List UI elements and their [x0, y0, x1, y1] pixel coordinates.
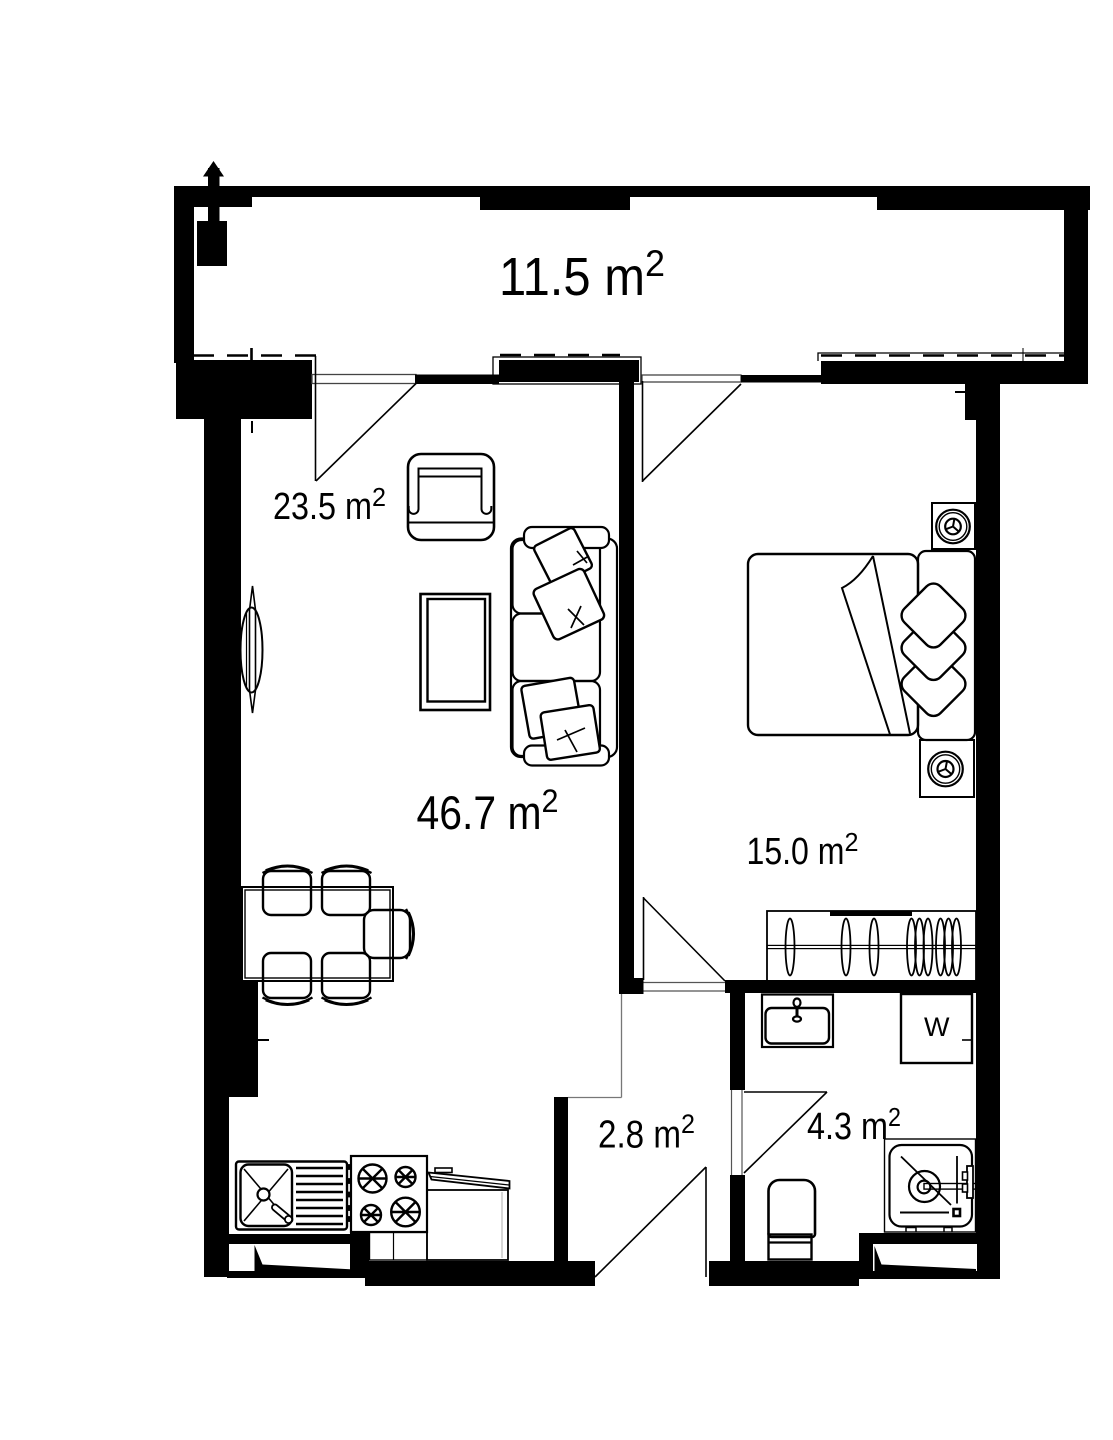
svg-text:W: W — [924, 1012, 950, 1042]
svg-text:11.5 m: 11.5 m — [499, 247, 645, 307]
svg-text:2.8 m: 2.8 m — [598, 1114, 681, 1157]
svg-text:4.3 m: 4.3 m — [807, 1106, 888, 1148]
svg-text:15.0 m: 15.0 m — [747, 831, 845, 873]
svg-text:2: 2 — [542, 783, 559, 819]
svg-text:2: 2 — [845, 827, 859, 857]
svg-text:23.5 m: 23.5 m — [273, 486, 372, 528]
svg-text:2: 2 — [888, 1102, 901, 1132]
svg-text:2: 2 — [645, 243, 665, 284]
svg-text:2: 2 — [372, 482, 386, 512]
svg-text:2: 2 — [681, 1109, 695, 1139]
svg-text:46.7 m: 46.7 m — [417, 786, 542, 839]
